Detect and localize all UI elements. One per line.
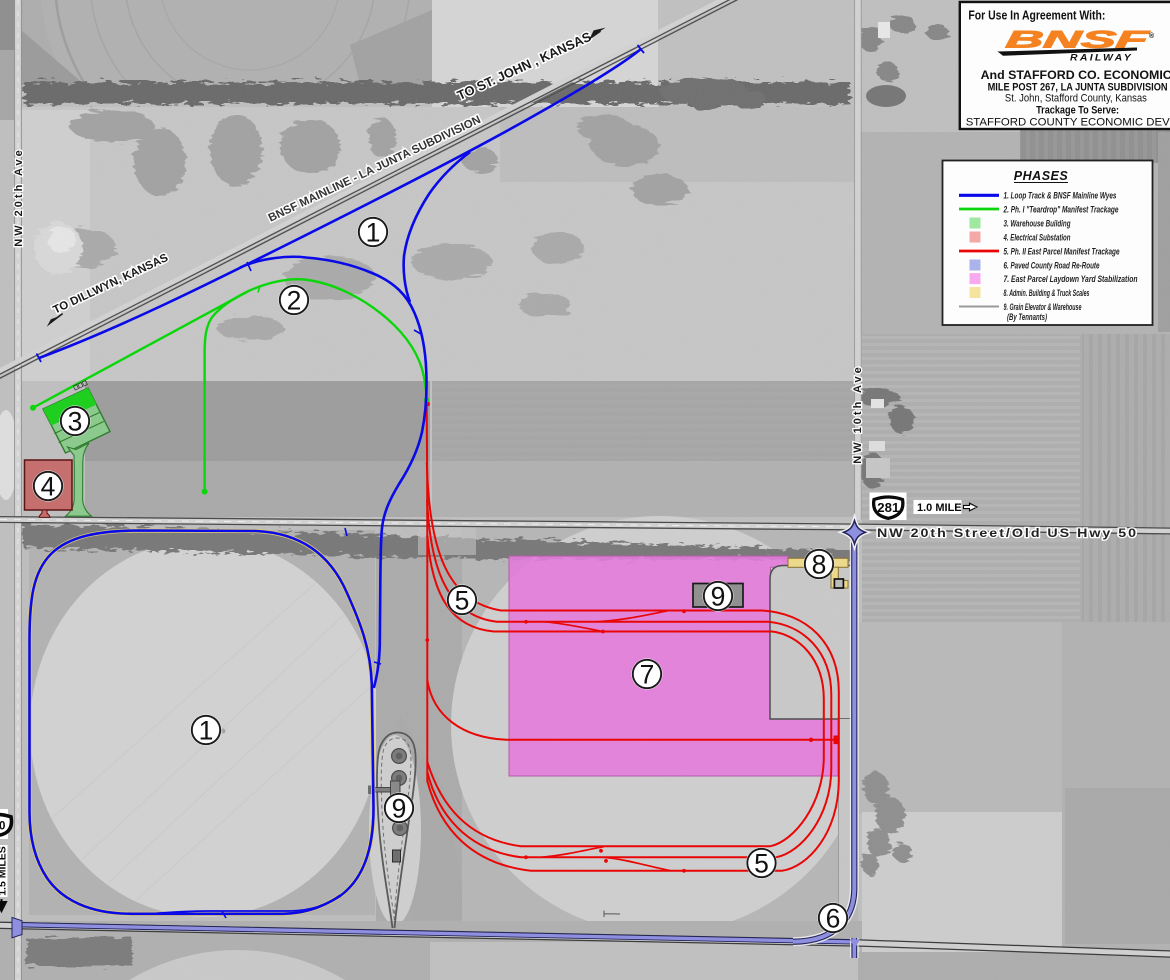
svg-text:And STAFFORD CO. ECONOMIC DEVE: And STAFFORD CO. ECONOMIC DEVELOPMENT [981,68,1170,82]
svg-text:3. Warehouse Building: 3. Warehouse Building [1004,218,1071,229]
svg-text:MILE POST 267, LA JUNTA SUBDIV: MILE POST 267, LA JUNTA SUBDIVISION [988,82,1168,94]
svg-text:NW 20th Ave: NW 20th Ave [13,147,25,246]
svg-text:(By Tennants): (By Tennants) [1007,312,1047,323]
svg-text:St. John, Stafford County, Kan: St. John, Stafford County, Kansas [1005,93,1147,105]
svg-text:NW 20th Street/Old US Hwy 50: NW 20th Street/Old US Hwy 50 [877,528,1138,540]
svg-text:6. Paved County Road Re-Route: 6. Paved County Road Re-Route [1004,260,1100,271]
svg-text:9: 9 [711,582,726,612]
svg-text:STAFFORD COUNTY ECONOMIC DEVEL: STAFFORD COUNTY ECONOMIC DEVELOPMENT COR… [966,116,1170,128]
svg-text:8. Admin. Building & Truck Sca: 8. Admin. Building & Truck Scales [1004,288,1090,299]
svg-text:7: 7 [640,660,655,690]
svg-text:9: 9 [392,794,407,824]
svg-text:6: 6 [826,904,841,934]
svg-text:RAILWAY: RAILWAY [1070,53,1133,63]
svg-text:Trackage To Serve:: Trackage To Serve: [1036,104,1119,116]
svg-text:®: ® [1149,32,1155,40]
svg-text:8: 8 [812,550,827,580]
svg-text:4. Electrical Substation: 4. Electrical Substation [1003,232,1071,243]
svg-text:50: 50 [0,821,5,833]
svg-text:2: 2 [287,286,302,316]
svg-text:5: 5 [754,849,769,879]
svg-text:PHASES: PHASES [1014,169,1069,183]
svg-text:1: 1 [199,716,214,746]
svg-text:NW 10th Ave: NW 10th Ave [852,364,864,463]
svg-text:7. East Parcel Laydown Yard St: 7. East Parcel Laydown Yard Stabilizatio… [1004,274,1138,285]
svg-text:1: 1 [366,218,381,248]
svg-text:1.5 MILES: 1.5 MILES [0,846,9,896]
svg-text:1.0 MILE: 1.0 MILE [917,502,962,514]
svg-text:1. Loop Track & BNSF Mainline: 1. Loop Track & BNSF Mainline Wyes [1004,191,1117,202]
svg-text:For Use In Agreement With:: For Use In Agreement With: [968,8,1105,23]
svg-text:4: 4 [41,472,56,502]
svg-text:5: 5 [455,586,470,616]
svg-text:281: 281 [877,500,899,515]
svg-text:2. Ph. I "Teardrop" Manifest T: 2. Ph. I "Teardrop" Manifest Trackage [1003,204,1119,215]
svg-text:3: 3 [68,407,83,437]
svg-text:5. Ph. II East Parcel Manifest: 5. Ph. II East Parcel Manifest Trackage [1004,246,1120,257]
